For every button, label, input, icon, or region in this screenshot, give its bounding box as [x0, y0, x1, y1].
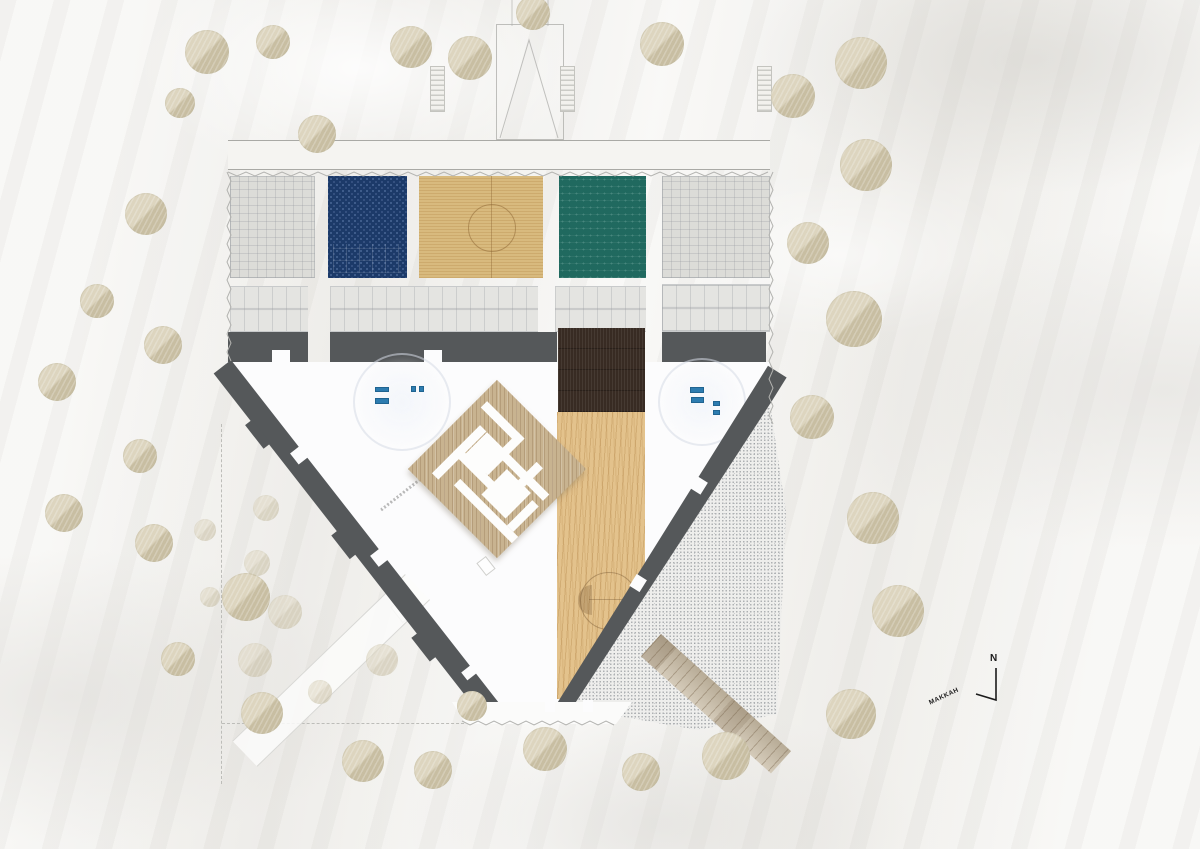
seat-symbol	[713, 410, 720, 415]
tree-symbol	[826, 689, 876, 739]
spine-wall-segment	[662, 332, 766, 362]
tree-symbol	[702, 732, 750, 780]
tree-symbol	[390, 26, 432, 68]
tree-symbol	[457, 691, 487, 721]
tree-symbol	[790, 395, 834, 439]
tree-symbol	[161, 642, 195, 676]
tree-symbol	[241, 692, 283, 734]
tree-symbol	[80, 284, 114, 318]
tree-symbol	[622, 753, 660, 791]
tree-symbol	[787, 222, 829, 264]
room-plan-right	[662, 176, 770, 278]
bench-symbol	[691, 397, 704, 403]
tree-symbol	[268, 595, 302, 629]
apron-tab	[583, 700, 593, 712]
spine-wall-segment	[330, 332, 557, 362]
site-boundary-dashed-vertical	[221, 424, 222, 784]
tree-symbol	[222, 573, 270, 621]
tree-symbol	[125, 193, 167, 235]
tree-symbol	[253, 495, 279, 521]
corridor-segment	[555, 286, 646, 332]
north-label: N	[990, 653, 997, 664]
tree-symbol	[826, 291, 882, 347]
tree-symbol	[448, 36, 492, 80]
louver-symbol	[560, 66, 575, 112]
apron-tab	[545, 700, 555, 712]
corridor-segment	[230, 286, 308, 332]
tower-footprint-outline	[496, 24, 564, 140]
north-arrow: N MAKKAH	[920, 645, 1040, 725]
tree-symbol	[165, 88, 195, 118]
tree-symbol	[414, 751, 452, 789]
tree-symbol	[256, 25, 290, 59]
makkah-direction-label: MAKKAH	[928, 687, 960, 707]
tree-symbol	[342, 740, 384, 782]
bench-symbol	[690, 387, 704, 393]
louver-symbol	[430, 66, 445, 112]
seat-symbol	[713, 401, 720, 406]
tree-symbol	[45, 494, 83, 532]
tree-symbol	[238, 643, 272, 677]
tree-symbol	[366, 644, 398, 676]
tree-symbol	[135, 524, 173, 562]
tree-symbol	[771, 74, 815, 118]
tree-symbol	[185, 30, 229, 74]
seat-symbol	[419, 386, 424, 392]
spine-wall-segment	[228, 332, 308, 362]
plaza-circle-motif	[353, 353, 451, 451]
tree-symbol	[847, 492, 899, 544]
tree-symbol	[523, 727, 567, 771]
tree-symbol	[200, 587, 220, 607]
bench-symbol	[375, 398, 389, 404]
bench-symbol	[375, 387, 389, 392]
tree-symbol	[308, 680, 332, 704]
dark-wood-deck	[558, 328, 645, 412]
tree-symbol	[123, 439, 157, 473]
tree-symbol	[872, 585, 924, 637]
door-opening	[272, 350, 290, 362]
site-plan-canvas: N MAKKAH	[0, 0, 1200, 849]
tree-symbol	[840, 139, 892, 191]
tree-symbol	[144, 326, 182, 364]
tree-symbol	[194, 519, 216, 541]
room-plan-left	[230, 176, 315, 278]
tree-symbol	[640, 22, 684, 66]
tree-symbol	[244, 550, 270, 576]
louver-symbol	[757, 66, 772, 112]
room-teal	[559, 176, 646, 278]
seat-symbol	[411, 386, 416, 392]
tree-symbol	[298, 115, 336, 153]
room-blue	[328, 176, 407, 278]
tree-symbol	[38, 363, 76, 401]
room-wood-court	[419, 176, 543, 278]
corridor-segment	[662, 284, 770, 332]
corridor-segment	[330, 286, 538, 332]
tree-symbol	[835, 37, 887, 89]
